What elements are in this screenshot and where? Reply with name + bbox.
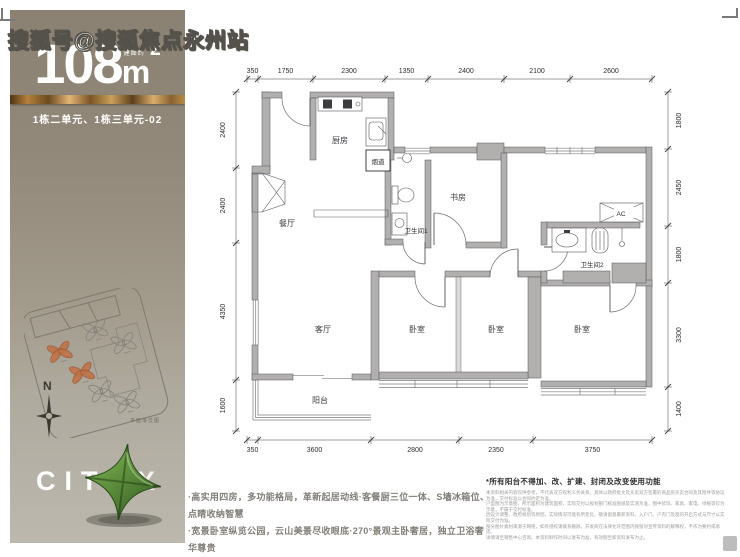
disclaimer: *所有阳台不得加、改、扩建、封闭及改变使用功能 本资料相关内容仅供参考，不代表双… [486,476,726,540]
corner-chip [723,536,737,551]
svg-text:2400: 2400 [220,122,227,138]
svg-text:350: 350 [247,68,259,75]
compass-hub [45,412,52,419]
dimension-chain-right: 18002450180033001400 [664,89,683,434]
compass-n-label: N [43,379,52,393]
crop-mark-top-right-v [736,8,738,17]
svg-text:1400: 1400 [676,401,683,417]
label-dining: 餐厅 [279,219,295,228]
siteplan-building [112,389,142,416]
fineprint-line: 详情请至销售中心咨询。本资料制作时间以发布为准，有效期至新资料发布为止。 [486,535,726,541]
siteplan-building [45,338,75,365]
svg-text:350: 350 [247,447,259,454]
svg-text:3600: 3600 [307,447,323,454]
toilet-1-bowl [398,188,414,202]
label-kitchen: 厨房 [332,135,348,145]
sidebar: 108建面约m2 1栋二单元、1栋三单元-02 平面落位图 N CITY X [10,10,185,543]
label-bath1: 卫生间1 [404,226,428,235]
svg-text:2800: 2800 [407,447,423,454]
area-unit: m [122,54,150,90]
room-labels: 厨房 餐厅 客厅 书房 卫生间1 卫生间2 卧室 卧室 卧室 阳台 烟道 AC [279,135,626,405]
fineprint-line: 部分图片素材来源于网络，如有侵权请联系删除，开发商在法律允许范围内保留对宣传资料… [486,524,726,535]
kitchen-counter-edge [314,210,388,217]
label-ac: AC [616,211,625,218]
disclaimer-fineprint: 本资料相关内容仅供参考，不代表双方权利义务关系，具体以政府批文及买卖双方签署的商… [486,490,726,540]
balcony-sliding-door [293,376,352,379]
svg-text:2350: 2350 [488,447,504,454]
svg-text:2400: 2400 [458,68,474,75]
svg-text:1600: 1600 [220,398,227,414]
siteplan-building [86,378,116,405]
svg-text:2400: 2400 [220,198,227,214]
compass: N [30,376,68,440]
label-living: 客厅 [315,324,331,334]
siteplan-building [108,330,138,357]
label-bath2: 卫生间2 [580,260,604,269]
hand-basin [403,154,412,163]
svg-text:2300: 2300 [341,68,357,75]
siteplan-building [67,359,97,386]
fineprint-line: 本资料相关内容仅供参考，不代表双方权利义务关系，具体以政府批文及买卖双方签署的商… [486,490,726,501]
dimension-chain-bottom: 3503600280023503750 [244,436,655,454]
svg-text:3750: 3750 [585,447,601,454]
svg-text:1750: 1750 [278,68,294,75]
toilet-1-tank [392,186,398,204]
svg-text:1350: 1350 [399,68,415,75]
disclaimer-title: *所有阳台不得加、改、扩建、封闭及改变使用功能 [486,476,726,487]
svg-text:3300: 3300 [676,327,683,343]
sohu-watermark: 搜狐号@搜狐焦点永州站 [8,25,249,55]
fineprint-line: 户型图为示意图，所示面积为建筑面积，实际交付以规划部门核准图纸及实测为准，图中装… [486,501,726,512]
floorplan-marketing-page: { "watermark": "搜狐号@搜狐焦点永州站", "sidebar":… [0,0,740,553]
label-bedroom-3: 卧室 [574,324,590,334]
label-bedroom-1: 卧室 [409,324,425,334]
siteplan-building [80,316,110,343]
label-bedroom-2: 卧室 [488,324,504,334]
crop-mark-top-left-v [1,8,3,20]
svg-text:2100: 2100 [529,68,545,75]
brand-green-x-object [68,438,178,534]
label-flue: 烟道 [372,157,386,166]
selling-point-1: ·高实用四房，多功能格局，革新起居动线·客餐厨三位一体、S墙冰箱位、点睛收纳智慧 [188,489,493,523]
dimension-chain-top: 350175023001350240021002600 [244,68,655,83]
label-study: 书房 [450,192,466,202]
siteplan-caption: 平面落位图 [130,417,160,424]
svg-text:1800: 1800 [676,247,683,263]
label-balcony: 阳台 [312,395,328,405]
svg-text:1800: 1800 [676,113,683,129]
fineprint-line: 因设计调整、政府规划等原因，实际情况可能有所变化，敬请留意最新资料。入户门、户内… [486,512,726,523]
selling-point-2: ·宽景卧室纵览公园，云山美景尽收眼底·270°景观主卧奢居，独立卫浴奢华尊贵 [188,523,493,557]
svg-text:2450: 2450 [676,180,683,196]
unit-label: 1栋二单元、1栋三单元-02 [10,111,185,126]
dimension-chain-left: 2400240043501600 [220,89,240,434]
selling-points: ·高实用四房，多功能格局，革新起居动线·客餐厨三位一体、S墙冰箱位、点睛收纳智慧… [188,489,493,557]
svg-text:4350: 4350 [220,304,227,320]
svg-text:2600: 2600 [603,68,619,75]
gold-ribbon-divider [10,95,185,104]
floorplan-drawing: 厨房 餐厅 客厅 书房 卫生间1 卫生间2 卧室 卧室 卧室 阳台 烟道 AC … [190,55,740,465]
